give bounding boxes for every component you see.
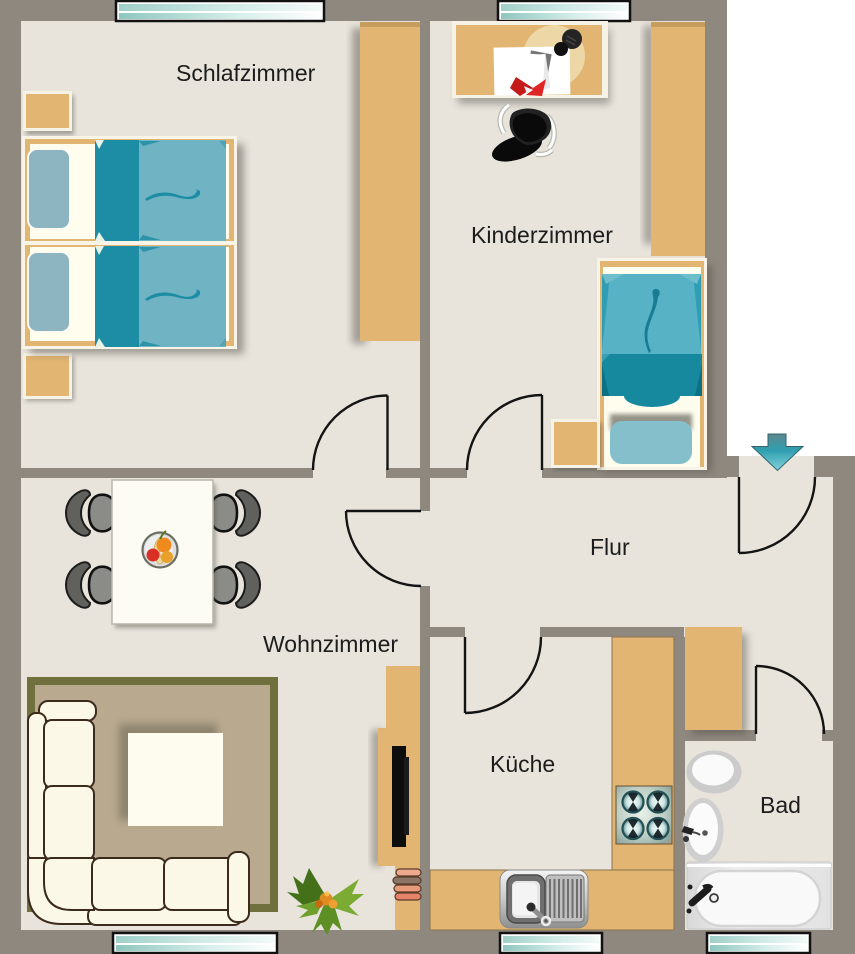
svg-text:Flur: Flur: [590, 534, 630, 560]
svg-text:Küche: Küche: [490, 751, 555, 777]
svg-text:Schlafzimmer: Schlafzimmer: [176, 60, 316, 86]
svg-text:Bad: Bad: [760, 792, 801, 818]
svg-text:Wohnzimmer: Wohnzimmer: [263, 631, 398, 657]
svg-text:Kinderzimmer: Kinderzimmer: [471, 222, 613, 248]
